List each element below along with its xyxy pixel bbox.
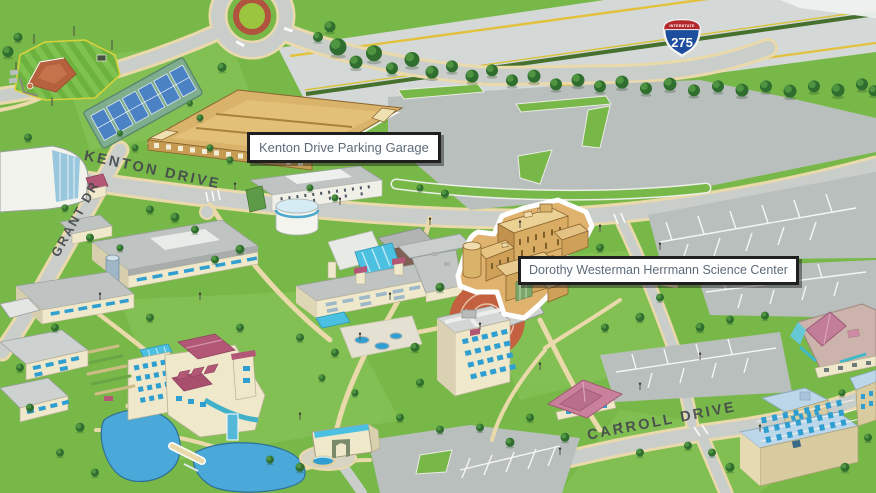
map-canvas[interactable]: INTERSTATE 275 — [0, 0, 876, 493]
bus-shelter — [540, 204, 552, 212]
shield-banner-text: INTERSTATE — [669, 24, 694, 28]
shield-number-text: 275 — [671, 35, 693, 50]
callout-science-center[interactable]: Dorothy Westerman Herrmann Science Cente… — [518, 256, 799, 285]
campus-map[interactable]: INTERSTATE 275 KENTON DRIVE GRANT DR CAR… — [0, 0, 876, 493]
callout-parking-garage[interactable]: Kenton Drive Parking Garage — [247, 132, 441, 163]
